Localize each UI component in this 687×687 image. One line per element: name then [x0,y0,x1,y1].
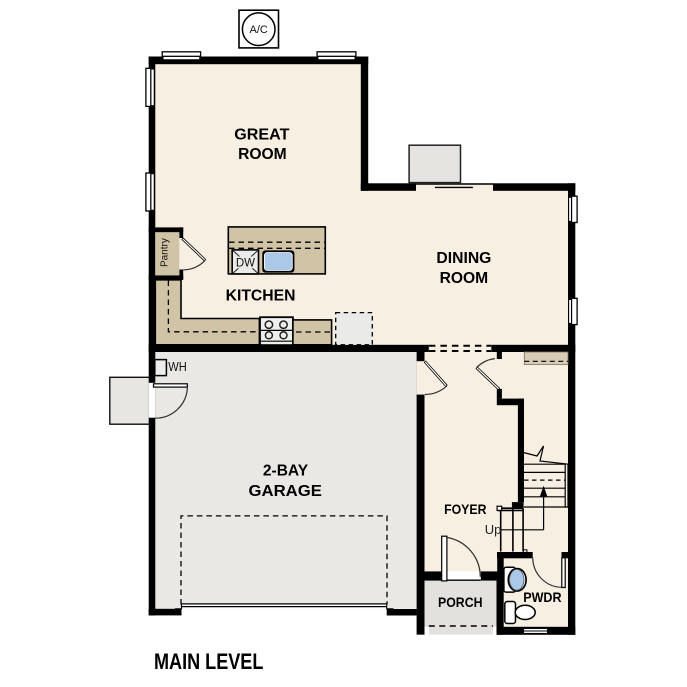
svg-text:PWDR: PWDR [523,589,561,605]
svg-text:GREAT: GREAT [234,126,289,143]
svg-text:MAIN LEVEL: MAIN LEVEL [154,649,263,674]
svg-text:Pantry: Pantry [160,238,171,267]
svg-text:DW: DW [236,258,255,270]
svg-text:PORCH: PORCH [438,594,483,610]
svg-text:FOYER: FOYER [444,501,486,517]
svg-text:ROOM: ROOM [440,270,489,287]
svg-text:DINING: DINING [436,250,491,267]
svg-text:A/C: A/C [250,24,268,36]
svg-text:KITCHEN: KITCHEN [226,287,296,304]
svg-text:WH: WH [168,360,187,374]
svg-text:ROOM: ROOM [238,146,287,163]
svg-text:Up: Up [485,522,502,537]
svg-text:GARAGE: GARAGE [249,483,322,500]
svg-text:2-BAY: 2-BAY [263,463,309,480]
